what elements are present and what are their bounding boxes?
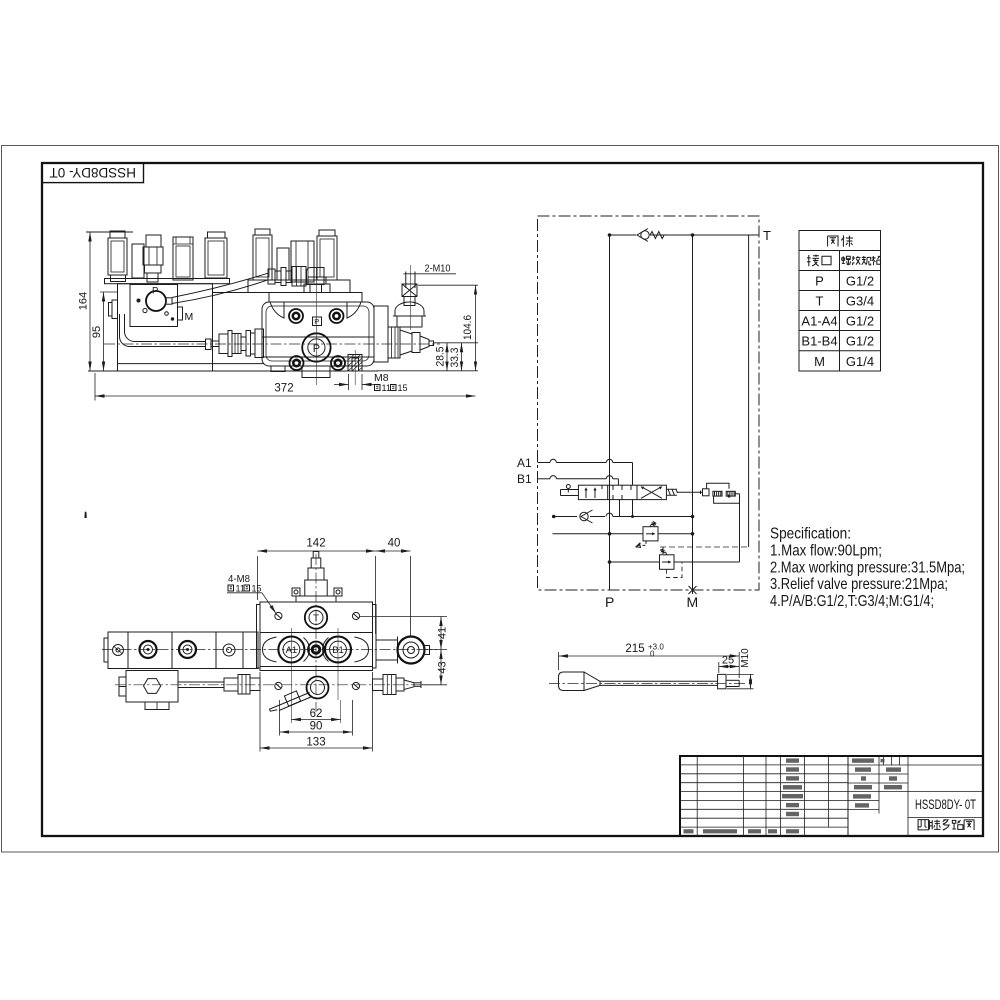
- svg-text:11: 11: [382, 383, 391, 393]
- svg-text:215: 215: [625, 643, 644, 655]
- svg-text:P: P: [815, 274, 824, 289]
- svg-text:372: 372: [274, 383, 293, 395]
- svg-text:M: M: [687, 594, 699, 610]
- svg-text:62: 62: [310, 708, 323, 720]
- svg-text:HSSD8DY- 0T: HSSD8DY- 0T: [49, 165, 136, 180]
- svg-text:P: P: [314, 317, 319, 326]
- svg-text:104.6: 104.6: [462, 315, 474, 340]
- svg-text:M: M: [814, 354, 825, 369]
- svg-text:HSSD8DY- 0T: HSSD8DY- 0T: [915, 797, 976, 812]
- svg-text:142: 142: [306, 538, 325, 550]
- svg-text:28.5: 28.5: [435, 347, 447, 367]
- svg-text:A1: A1: [517, 456, 532, 470]
- svg-text:41: 41: [437, 627, 449, 639]
- svg-text:0: 0: [650, 650, 655, 659]
- svg-text:G1/4: G1/4: [846, 354, 874, 369]
- svg-text:3.Relief valve pressure:21Mpa;: 3.Relief valve pressure:21Mpa;: [770, 576, 948, 593]
- svg-text:33.3: 33.3: [449, 348, 461, 368]
- svg-text:A1: A1: [286, 645, 298, 656]
- svg-text:B1: B1: [332, 645, 344, 656]
- svg-text:40: 40: [388, 538, 401, 550]
- svg-text:M10: M10: [740, 648, 751, 668]
- svg-text:43: 43: [437, 661, 449, 673]
- svg-text:4.P/A/B:G1/2,T:G3/4;M:G1/4;: 4.P/A/B:G1/2,T:G3/4;M:G1/4;: [770, 593, 934, 610]
- svg-text:90: 90: [310, 721, 323, 733]
- svg-text:Specification:: Specification:: [770, 526, 851, 543]
- svg-text:G1/2: G1/2: [846, 274, 874, 289]
- svg-text:G1/2: G1/2: [846, 334, 874, 349]
- svg-text:T: T: [313, 614, 319, 625]
- svg-text:B1-B4: B1-B4: [801, 334, 837, 349]
- svg-text:B1: B1: [517, 472, 532, 486]
- svg-text:G1/2: G1/2: [846, 314, 874, 329]
- svg-text:T: T: [816, 294, 824, 309]
- svg-text:164: 164: [78, 292, 90, 310]
- svg-text:G3/4: G3/4: [846, 294, 874, 309]
- svg-text:133: 133: [306, 737, 325, 749]
- svg-text:M: M: [185, 311, 194, 323]
- svg-text:2.Max working pressure:31.5Mpa: 2.Max working pressure:31.5Mpa;: [770, 559, 965, 576]
- svg-text:A1-A4: A1-A4: [801, 314, 837, 329]
- svg-text:P: P: [605, 594, 614, 610]
- svg-text:95: 95: [91, 326, 103, 338]
- svg-text:1.Max flow:90Lpm;: 1.Max flow:90Lpm;: [770, 543, 882, 560]
- svg-text:11: 11: [236, 584, 245, 594]
- svg-text:T: T: [763, 228, 771, 243]
- svg-text:15: 15: [252, 584, 262, 594]
- svg-text:P: P: [152, 286, 158, 297]
- svg-text:2-M10: 2-M10: [425, 264, 451, 275]
- svg-text:25: 25: [722, 655, 734, 667]
- svg-text:15: 15: [398, 383, 408, 393]
